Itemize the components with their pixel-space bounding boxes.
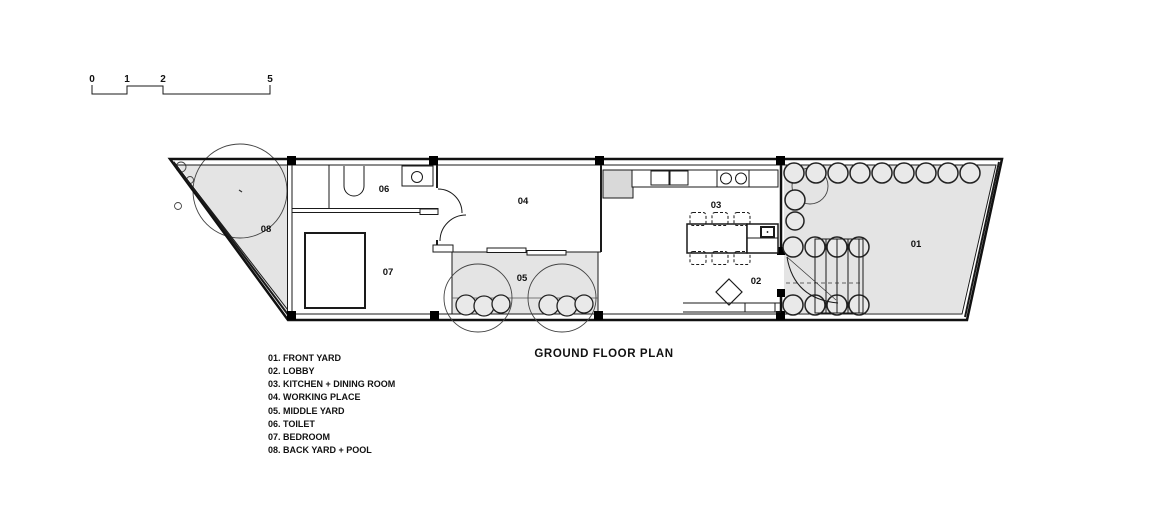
legend-item-01: 01. FRONT YARD [268,353,342,363]
kitchen-sink-icon [651,171,669,185]
shrub-icon [960,163,980,183]
door-swing-icon [440,215,466,241]
scale-mark-5: 5 [267,74,273,85]
dining-table [687,224,747,253]
shrub-icon [492,295,510,313]
column [594,311,603,320]
shrub-icon [474,296,494,316]
bathroom-sink-icon [344,166,364,196]
legend-item-05: 05. MIDDLE YARD [268,406,345,416]
toilet-icon [412,172,423,183]
shrub-icon [557,296,577,316]
room-label-bedroom: 07 [383,267,394,278]
shrub-icon [783,237,803,257]
legend-item-03: 03. KITCHEN + DINING ROOM [268,379,395,389]
tall-cabinet [603,170,633,198]
kitchen-sink-icon [670,171,688,185]
column [430,311,439,320]
room-label-middle-yard: 05 [517,273,528,284]
burner-icon [721,173,732,184]
legend-item-06: 06. TOILET [268,419,315,429]
shrub-icon [784,163,804,183]
burner-icon [736,173,747,184]
floor-plan-drawing: 0 1 2 5 [0,0,1160,524]
wall-stub [420,209,438,215]
door-swing-icon [438,189,462,213]
shrub-icon [539,295,559,315]
wall-toilet-bedroom [292,209,438,213]
sliding-door-track [487,248,526,253]
column [287,311,296,320]
room-label-kitchen: 03 [711,200,722,211]
shrub-icon [894,163,914,183]
sliding-door-track [527,251,566,256]
scale-mark-1: 1 [124,74,130,85]
shrub-icon [785,190,805,210]
shrub-icon [806,163,826,183]
legend-item-04: 04. WORKING PLACE [268,392,361,402]
shrub-icon [916,163,936,183]
room-label-lobby: 02 [751,276,762,287]
shrub-icon [938,163,958,183]
scale-bar-line [92,85,270,94]
shrub-icon [575,295,593,313]
shrub-icon [872,163,892,183]
column [777,289,785,297]
column [287,156,296,165]
legend: 01. FRONT YARD 02. LOBBY 03. KITCHEN + D… [268,353,395,455]
column [595,156,604,165]
scale-mark-2: 2 [160,74,166,85]
scale-mark-0: 0 [89,74,95,85]
toilet-room [329,165,466,241]
plan-title: GROUND FLOOR PLAN [534,348,673,360]
yard-ledge [433,245,453,252]
appliance-dot [767,231,769,233]
floor-plan-sheet: 0 1 2 5 [0,0,1160,524]
legend-item-07: 07. BEDROOM [268,432,330,442]
room-label-toilet: 06 [379,184,390,195]
kitchen-dining [603,170,778,265]
shrub-icon [456,295,476,315]
lobby-details [683,279,781,312]
legend-item-02: 02. LOBBY [268,366,315,376]
room-label-back-yard: 08 [261,224,272,235]
wall-backyard [288,165,293,313]
room-label-working: 04 [518,196,529,207]
column [776,156,785,165]
shrub-icon [783,295,803,315]
scale-bar: 0 1 2 5 [89,74,273,94]
shrub-icon [828,163,848,183]
legend-item-08: 08. BACK YARD + POOL [268,445,372,455]
column [429,156,438,165]
shrub-icon [786,212,804,230]
shrub-icon [850,163,870,183]
decor-diamond-icon [716,279,742,305]
room-label-front-yard: 01 [911,239,922,250]
bed [305,233,365,308]
